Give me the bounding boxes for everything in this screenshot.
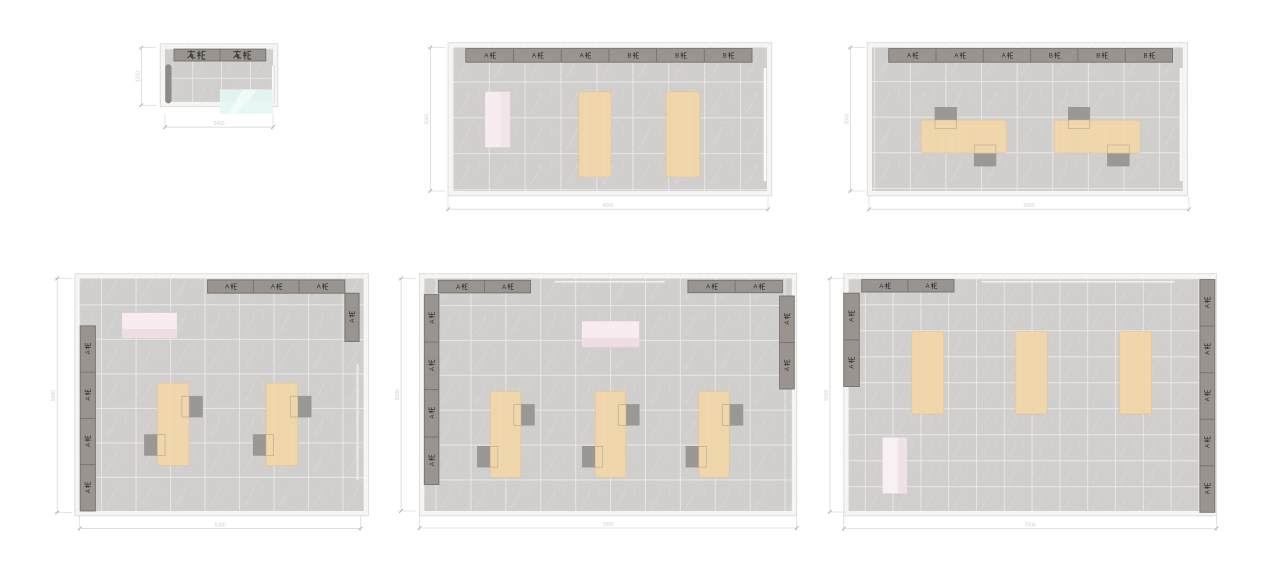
svg-text:6600: 6600: [1023, 203, 1034, 209]
svg-text:5000: 5000: [51, 390, 57, 401]
svg-text:5000: 5000: [395, 389, 401, 400]
svg-text:7600: 7600: [1025, 523, 1036, 529]
svg-text:3000: 3000: [844, 113, 850, 124]
svg-text:1250: 1250: [135, 71, 141, 82]
svg-text:2400: 2400: [213, 121, 224, 127]
svg-text:5000: 5000: [824, 389, 830, 400]
svg-text:7800: 7800: [603, 522, 614, 528]
svg-text:6600: 6600: [602, 203, 613, 209]
svg-text:6300: 6300: [215, 522, 226, 528]
svg-text:3000: 3000: [424, 113, 430, 124]
